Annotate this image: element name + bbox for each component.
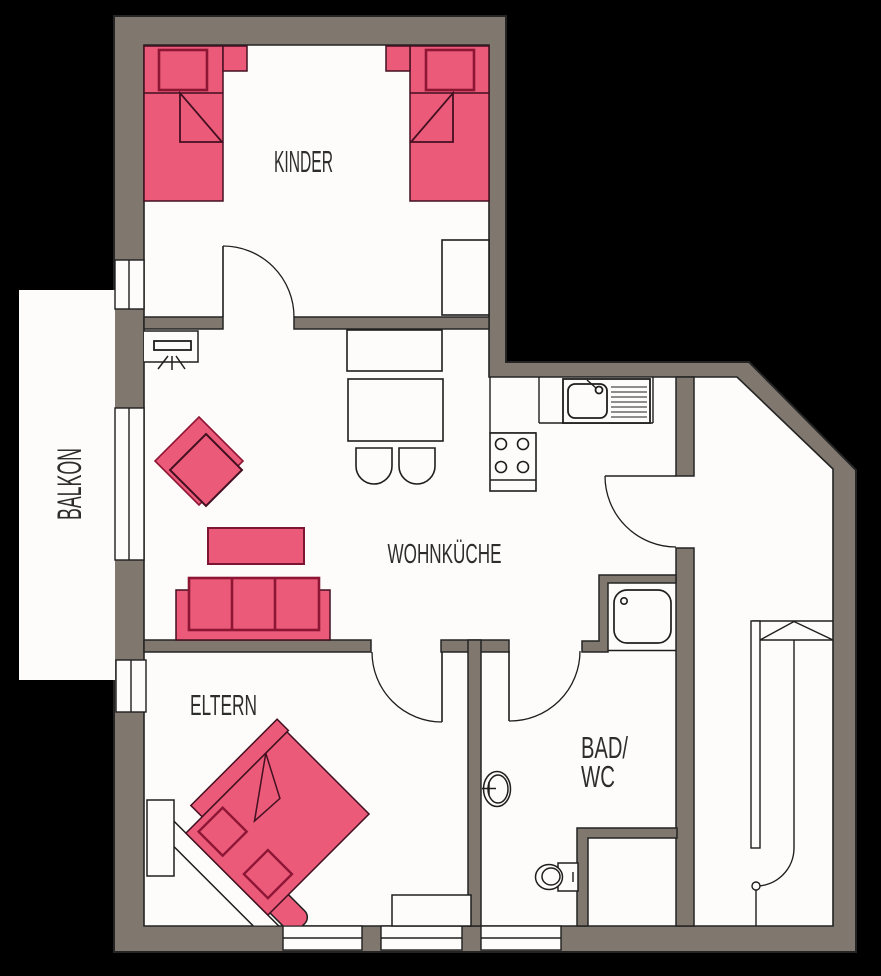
- svg-text:WOHNKÜCHE: WOHNKÜCHE: [388, 538, 502, 569]
- svg-text:BALKON: BALKON: [51, 448, 89, 520]
- svg-text:KINDER: KINDER: [274, 144, 333, 179]
- svg-text:ELTERN: ELTERN: [190, 690, 257, 722]
- svg-text:WC: WC: [581, 759, 615, 794]
